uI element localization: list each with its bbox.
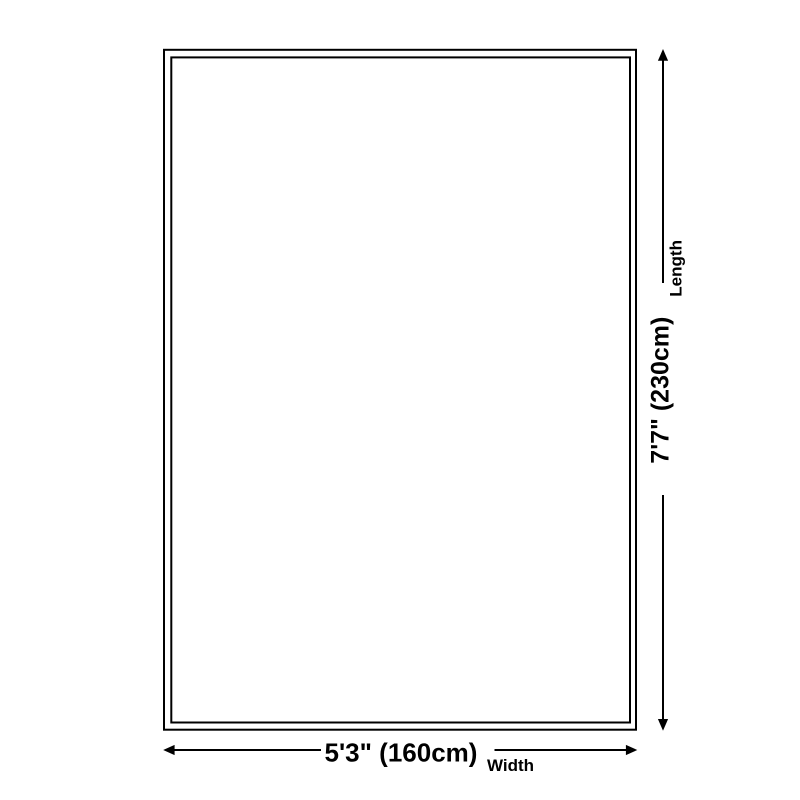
svg-text:Length: Length bbox=[667, 240, 686, 297]
svg-text:5'3" (160cm): 5'3" (160cm) bbox=[325, 738, 478, 768]
svg-text:7'7" (230cm): 7'7" (230cm) bbox=[647, 317, 675, 464]
svg-text:Width: Width bbox=[487, 756, 534, 775]
